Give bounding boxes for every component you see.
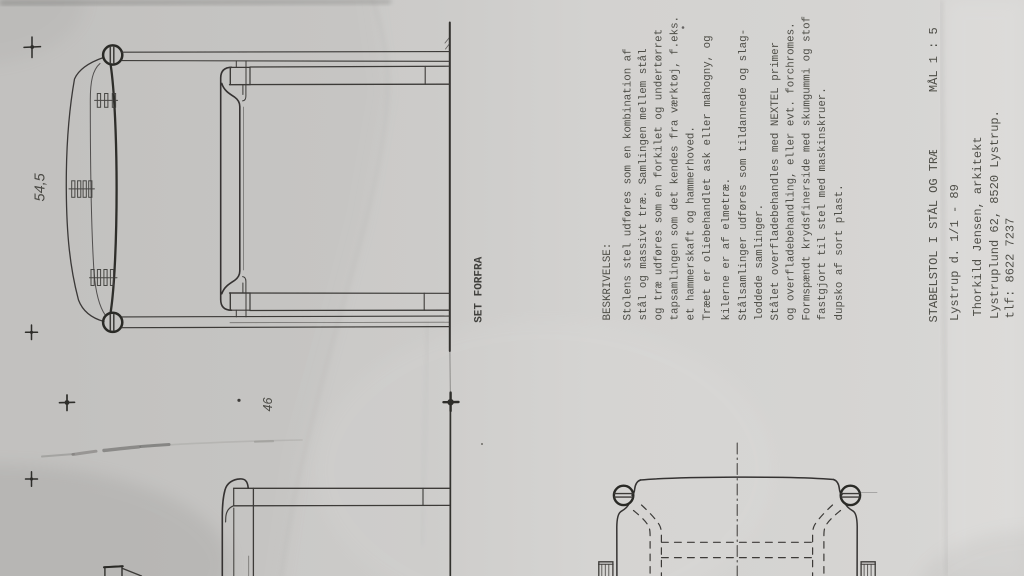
svg-text:og overfladebehandling, eller: og overfladebehandling, eller evt. forch…: [786, 22, 798, 320]
svg-text:Lystruplund 62, 8520 Lystrup.: Lystruplund 62, 8520 Lystrup.: [988, 110, 1002, 319]
svg-text:Stolens stel udføres som en ko: Stolens stel udføres som en kombination …: [623, 48, 635, 320]
svg-text:SET FORFRA: SET FORFRA: [474, 256, 486, 322]
svg-text:46: 46: [261, 398, 275, 412]
svg-text:Træet er oliebehandlet ask ell: Træet er oliebehandlet ask eller mahogny…: [702, 35, 714, 320]
svg-text:Stålsamlinger udføres som tild: Stålsamlinger udføres som tildannede og …: [737, 29, 750, 321]
svg-text:stål og massivt træ. Samlingen: stål og massivt træ. Samlingen mellem st…: [637, 48, 650, 320]
svg-text:tapsamlingen som det kendes fr: tapsamlingen som det kendes fra værktøj,…: [670, 16, 682, 321]
svg-text:loddede samlinger.: loddede samlinger.: [754, 204, 766, 321]
svg-text:et hammerskaft og hammerhoved.: et hammerskaft og hammerhoved.: [686, 126, 698, 320]
svg-text:Thorkild Jensen, arkitekt: Thorkild Jensen, arkitekt: [971, 136, 985, 316]
svg-text:Stålet overfladebehandles med: Stålet overfladebehandles med NEXTEL pri…: [769, 42, 782, 321]
svg-text:STABELSTOL I STÅL OG TRÆ: STABELSTOL I STÅL OG TRÆ MÅL 1 : 5: [926, 27, 941, 322]
svg-text:54,5: 54,5: [33, 172, 49, 201]
svg-text:Lystrup d. 1/1 - 89: Lystrup d. 1/1 - 89: [948, 184, 962, 321]
svg-text:dupsko af sort plast.: dupsko af sort plast.: [834, 184, 846, 320]
svg-text:og træ udføres som en forkilet: og træ udføres som en forkilet og undert…: [654, 29, 666, 321]
svg-text:kilerne er af elmetræ.: kilerne er af elmetræ.: [721, 178, 733, 321]
svg-text:tlf: 8622 7237: tlf: 8622 7237: [1004, 218, 1018, 319]
svg-text:Formspændt krydsfinerside med: Formspændt krydsfinerside med skumgummi …: [802, 16, 814, 321]
svg-text:fastgjort til stel med maskins: fastgjort til stel med maskinskruer.: [817, 87, 829, 320]
svg-text:BESKRIVELSE:: BESKRIVELSE:: [602, 243, 614, 321]
